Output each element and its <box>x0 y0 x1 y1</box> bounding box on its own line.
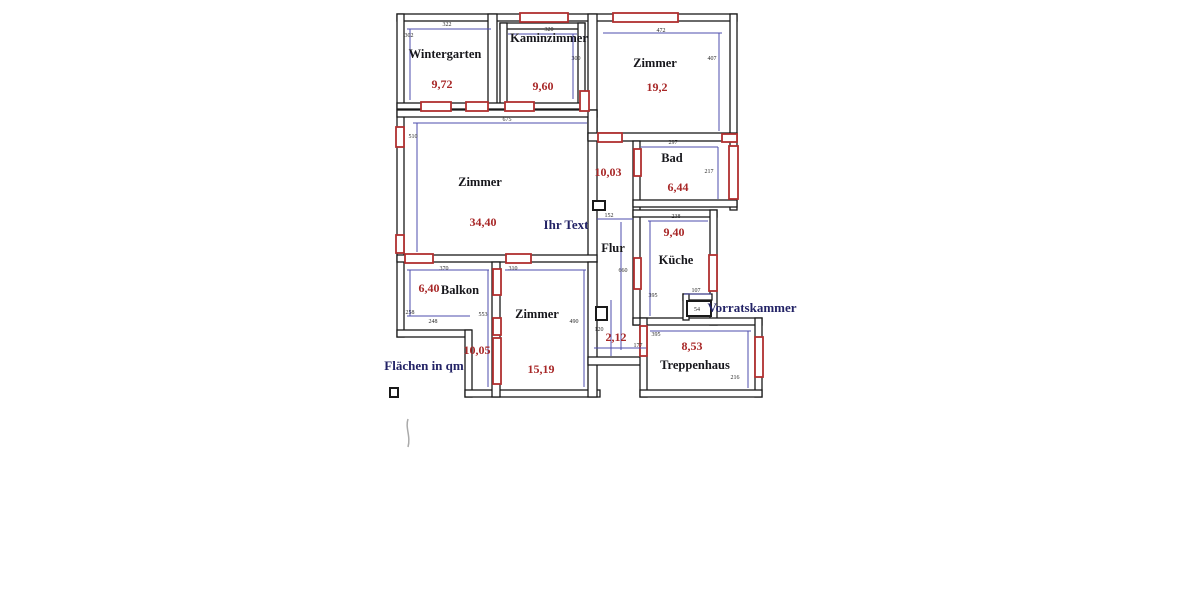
window-marker-separator-mid <box>493 318 501 335</box>
dim-label-152: 152 <box>605 213 614 219</box>
dim-label-120: 120 <box>595 327 604 333</box>
wall-balkon-bottom <box>397 330 471 337</box>
dim-label-322: 322 <box>443 22 452 28</box>
wall-wintergarten-right <box>488 14 497 110</box>
wall-bottom-middle <box>465 390 600 397</box>
window-marker-left-wall-lower <box>396 235 404 253</box>
dim-label-217: 217 <box>705 169 714 175</box>
window-marker-left-wall-upper <box>396 127 404 147</box>
wall-step-vertical <box>465 330 472 397</box>
room-label-zimmer-west: Zimmer <box>458 175 502 189</box>
window-marker-zimmer-nordost-top <box>613 13 678 22</box>
room-area-zimmer-nordost: 19,2 <box>647 80 668 94</box>
dim-label-510: 510 <box>409 134 418 140</box>
dim-label-216: 216 <box>731 375 740 381</box>
dim-label-370: 370 <box>440 266 449 272</box>
window-marker-treppenhaus-right <box>755 337 763 377</box>
dim-label-407: 407 <box>708 56 717 62</box>
floor-plan-canvas: 322 302 320 300 472 407 675 510 297 217 … <box>0 0 1200 600</box>
dim-label-395-treppenhaus: 395 <box>652 332 661 338</box>
dim-label-395-kueche: 395 <box>649 293 658 299</box>
door-marker-bad <box>634 149 641 176</box>
dim-label-107: 107 <box>692 288 701 294</box>
room-area-zimmer-sued: 15,19 <box>528 362 555 376</box>
door-marker-balkon <box>405 254 433 263</box>
room-area-kueche: 9,40 <box>664 225 685 239</box>
room-area-wintergarten: 9,72 <box>432 77 453 91</box>
dim-label-490: 490 <box>570 319 579 325</box>
window-marker-kaminzimmer-top <box>520 13 568 22</box>
dim-label-54: 54 <box>694 307 700 313</box>
dim-label-297: 297 <box>669 140 678 146</box>
scan-artifacts <box>407 419 409 447</box>
room-label-bad: Bad <box>661 151 683 165</box>
dim-label-675: 675 <box>503 117 512 123</box>
window-marker-bad-right <box>729 146 738 199</box>
wall-treppenhaus-bottom <box>640 390 762 397</box>
room-label-treppenhaus: Treppenhaus <box>660 358 730 372</box>
room-area-flur: 10,03 <box>595 165 622 179</box>
room-label-kaminzimmer: Kaminzimmer <box>510 31 588 45</box>
dim-label-302: 302 <box>405 33 414 39</box>
dim-label-660: 660 <box>619 268 628 274</box>
dim-label-177: 177 <box>634 343 643 349</box>
room-label-zimmer-sued: Zimmer <box>515 307 559 321</box>
wall-kaminzimmer-top <box>500 23 585 29</box>
room-area-bad: 6,44 <box>668 180 689 194</box>
wall-bad-bottom <box>633 200 737 207</box>
window-marker-kueche-right <box>709 255 717 291</box>
room-area-kaminzimmer: 9,60 <box>533 79 554 93</box>
room-area-zimmer-west: 34,40 <box>470 215 497 229</box>
door-marker-kaminzimmer-side <box>580 91 589 111</box>
door-marker-zimmer-nordost-corner <box>722 134 737 142</box>
unit-note: Flächen in qm <box>384 358 464 373</box>
pillar-korridor <box>596 307 607 320</box>
dim-label-472: 472 <box>657 28 666 34</box>
door-marker-kueche <box>634 258 641 289</box>
door-marker-flur-top <box>598 133 622 142</box>
dim-label-248: 248 <box>429 319 438 325</box>
room-label-balkon: Balkon <box>441 283 479 297</box>
room-area-korridor: 2,12 <box>606 330 627 344</box>
window-marker-separator-upper <box>493 269 501 295</box>
room-area-balkon: 6,40 <box>419 281 440 295</box>
window-marker-separator-lower <box>493 338 501 384</box>
room-label-kueche: Küche <box>659 253 694 267</box>
door-marker-zimmer-sued <box>506 254 531 263</box>
wall-kaminzimmer-left <box>500 23 507 110</box>
label-vorratskammer: Vorratskammer <box>707 300 796 315</box>
floor-plan-drawing: 322 302 320 300 472 407 675 510 297 217 … <box>0 0 1200 600</box>
door-marker-treppenhaus <box>640 326 647 356</box>
wall-outer-left <box>397 14 404 337</box>
wall-korridor-bottom <box>588 357 645 365</box>
room-label-zimmer-nordost: Zimmer <box>633 56 677 70</box>
dim-label-258: 258 <box>406 310 415 316</box>
door-marker-wintergarten-a <box>421 102 451 111</box>
door-marker-wintergarten-b <box>466 102 488 111</box>
walls <box>390 14 762 397</box>
dim-label-238: 238 <box>672 214 681 220</box>
wall-kueche-bottom-treppenhaus-top <box>633 318 762 325</box>
dim-label-310: 310 <box>509 266 518 272</box>
pen-mark-artifact <box>407 419 409 447</box>
wall-jamb-flur <box>593 201 605 210</box>
room-label-flur: Flur <box>601 241 625 255</box>
room-label-wintergarten: Wintergarten <box>409 47 482 61</box>
dim-label-300: 300 <box>572 56 581 62</box>
room-area-gang: 10,05 <box>464 343 491 357</box>
dim-label-553: 553 <box>479 312 488 318</box>
door-marker-kaminzimmer <box>505 102 534 111</box>
wall-fragment-bottom-left <box>390 388 398 397</box>
placeholder-text: Ihr Text <box>544 217 590 232</box>
room-area-treppenhaus: 8,53 <box>682 339 703 353</box>
